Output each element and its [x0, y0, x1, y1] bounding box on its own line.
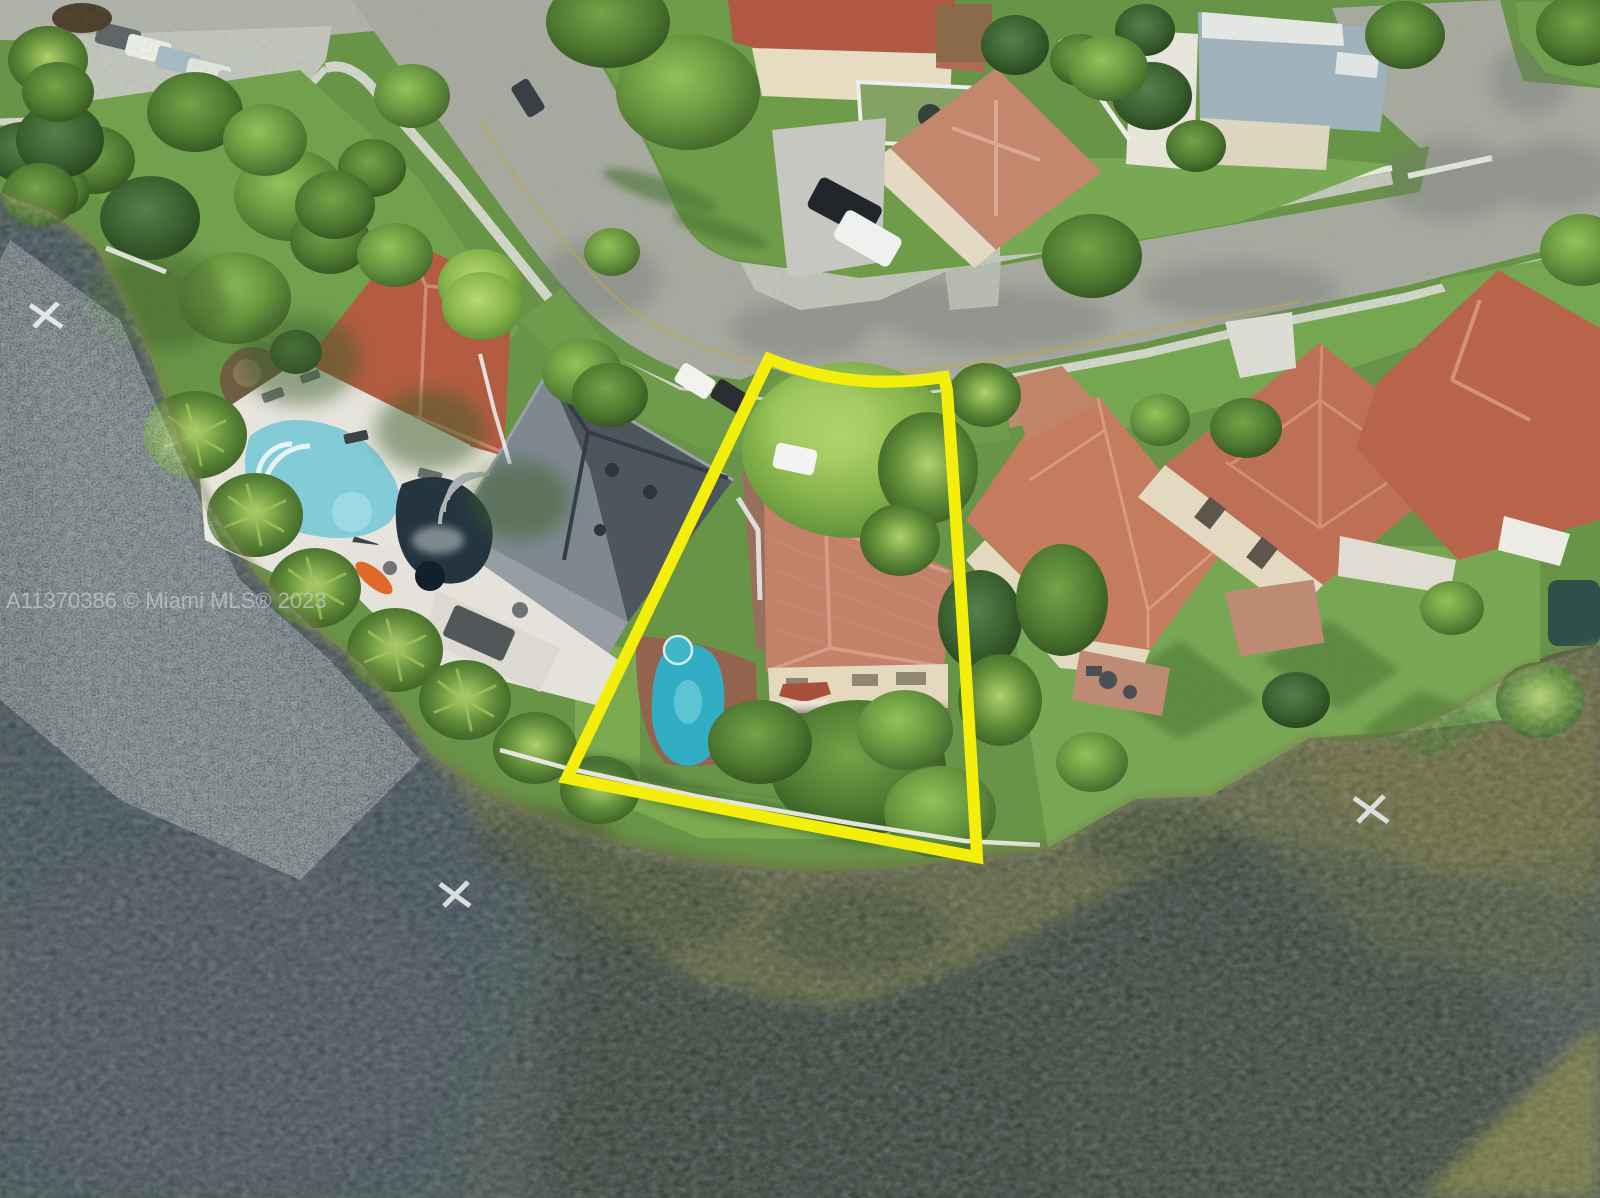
svg-text:A11370386 © Miami MLS® 2023: A11370386 © Miami MLS® 2023 — [6, 588, 327, 613]
